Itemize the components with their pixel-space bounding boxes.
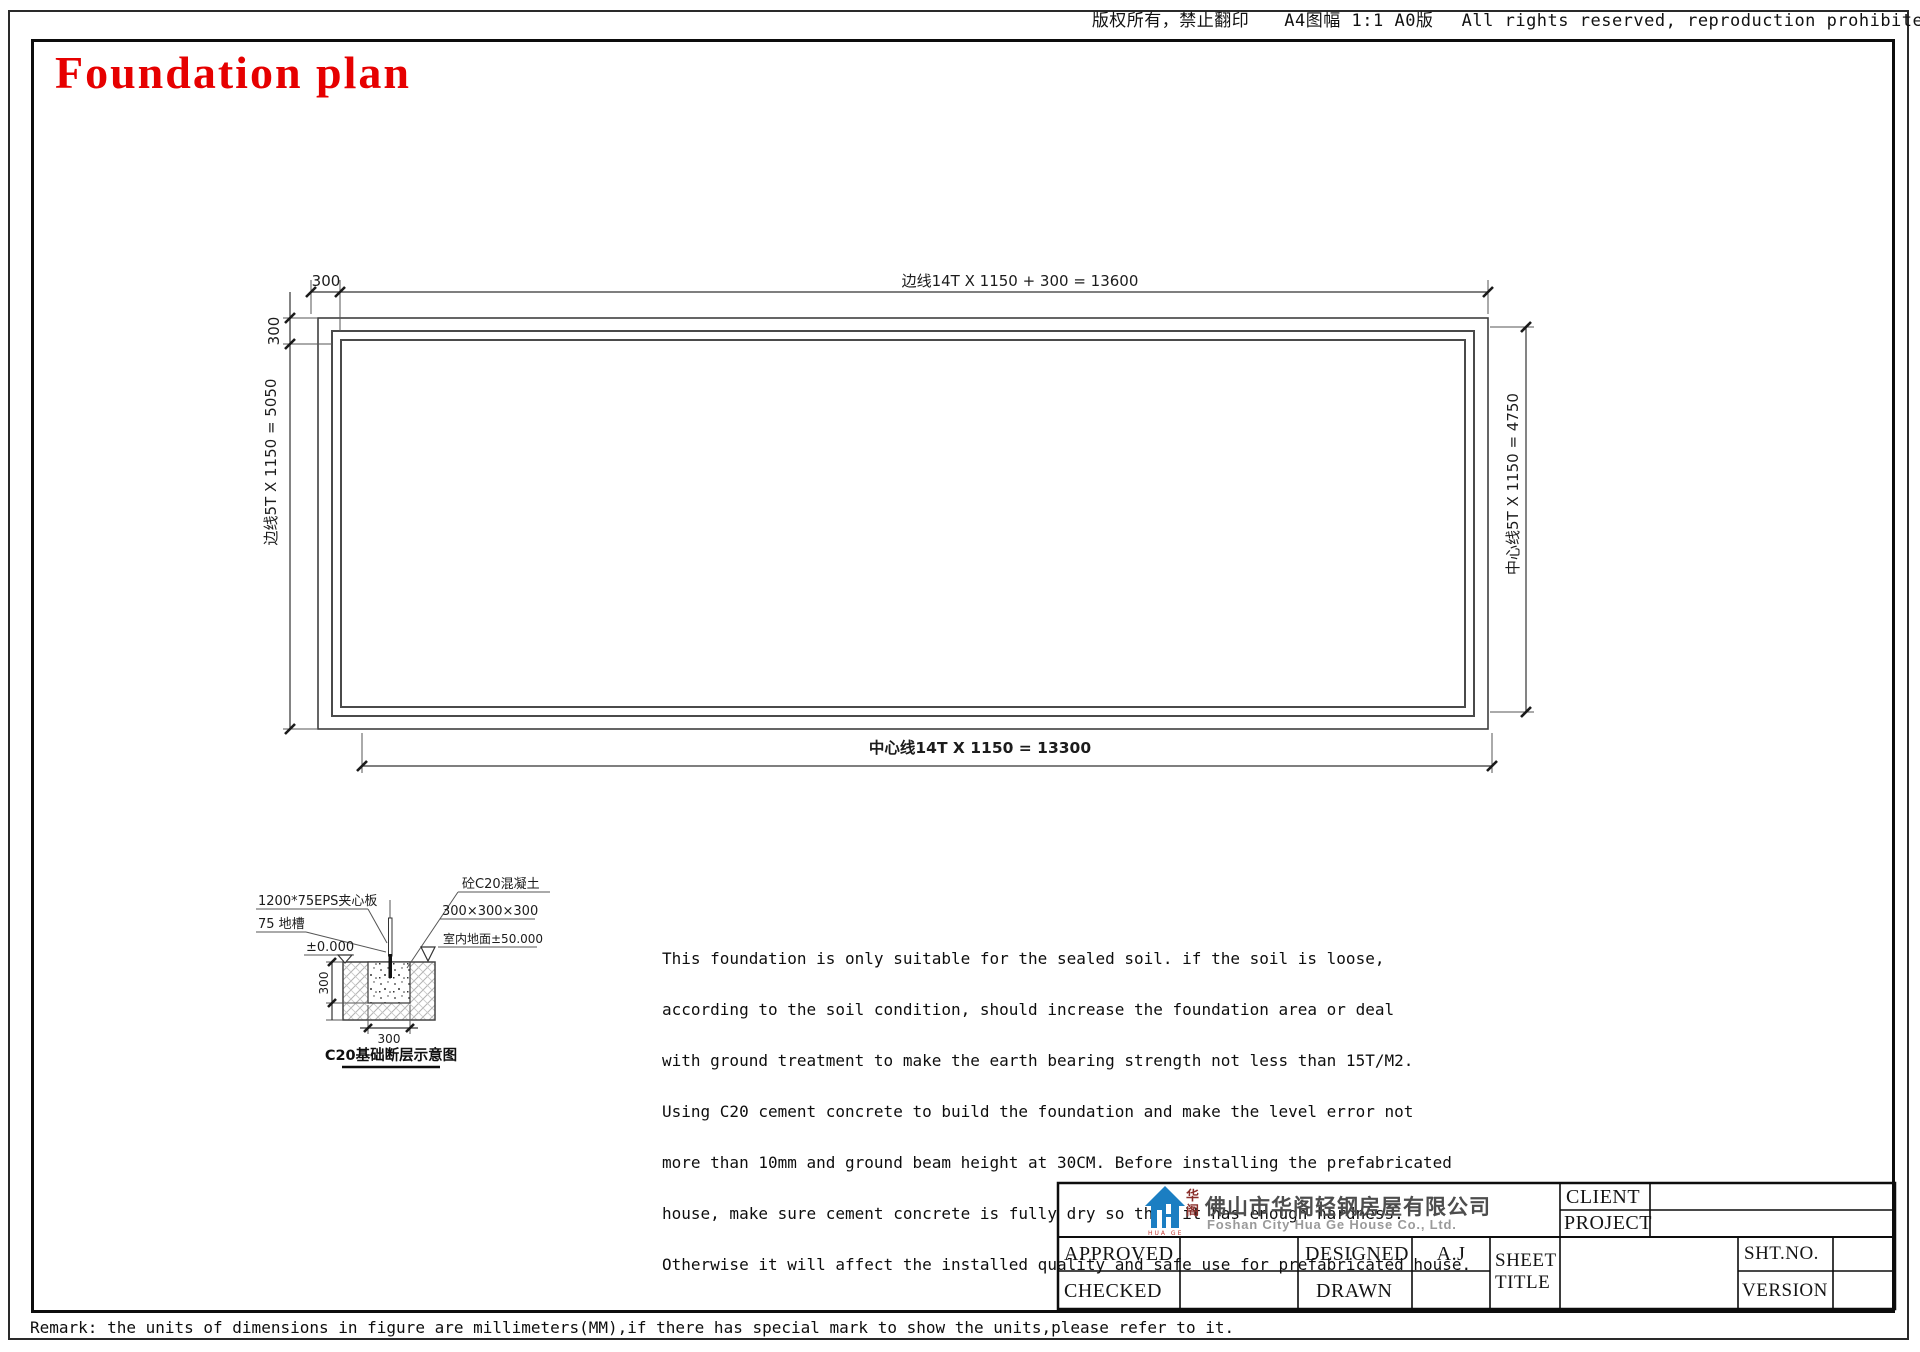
logo-char-top: 华 (1186, 1188, 1199, 1204)
sheet-title-line1: SHEET (1495, 1250, 1557, 1272)
foundation-beam-inner (341, 340, 1465, 707)
logo-subtext: HUA GE (1148, 1230, 1183, 1237)
foundation-beam-outer (332, 331, 1474, 716)
sheet-number-label: SHT.NO. (1744, 1243, 1819, 1265)
logo-char-bottom: 阁 (1186, 1203, 1199, 1219)
designed-value: A.J (1412, 1243, 1490, 1266)
detail-label-level-zero: ±0.000 (306, 940, 354, 955)
company-name-en: Foshan City Hua Ge House Co., Ltd. (1207, 1217, 1457, 1232)
logo-house-icon (1145, 1186, 1185, 1228)
company-logo: 华 阁 HUA GE (1140, 1184, 1202, 1236)
checked-label: CHECKED (1064, 1280, 1162, 1303)
dim-left-main: 边线5T X 1150 = 5050 (262, 379, 280, 546)
dim-bottom-main: 中心线14T X 1150 = 13300 (869, 738, 1091, 757)
copyright-notice: 版权所有，禁止翻印 A4图幅 1:1 A0版 All rights reserv… (1092, 6, 1920, 31)
designed-label: DESIGNED (1305, 1243, 1409, 1266)
note-line: This foundation is only suitable for the… (662, 950, 1471, 967)
detail-eps-panel-embedded (389, 954, 393, 978)
sheet-title-label: SHEET TITLE (1495, 1250, 1557, 1294)
dim-top-300: 300 (312, 272, 341, 290)
dimension-left: 300 边线5T X 1150 = 5050 (262, 292, 332, 734)
detail-caption: C20基础断层示意图 (325, 1046, 457, 1064)
remark-note: Remark: the units of dimensions in figur… (30, 1318, 1234, 1337)
drawing-sheet: 版权所有，禁止翻印 A4图幅 1:1 A0版 All rights reserv… (0, 0, 1920, 1352)
detail-label-concrete: 砼C20混凝土 (462, 876, 540, 892)
client-label: CLIENT (1566, 1186, 1640, 1209)
detail-label-eps: 1200*75EPS夹心板 (258, 894, 377, 909)
detail-label-floor-level: 室内地面±50.000 (443, 931, 543, 946)
version-label: VERSION (1742, 1280, 1828, 1302)
logo-house-window (1157, 1210, 1162, 1228)
foundation-section-detail: 1200*75EPS夹心板 75 地槽 ±0.000 砼C20混凝土 300×3… (250, 870, 590, 1085)
detail-label-level-zero-group: ±0.000 (304, 940, 354, 963)
approved-label: APPROVED (1064, 1243, 1174, 1266)
note-line: with ground treatment to make the earth … (662, 1052, 1471, 1069)
logo-house-window-bar (1166, 1214, 1171, 1217)
note-line: Using C20 cement concrete to build the f… (662, 1103, 1471, 1120)
dim-top-main: 边线14T X 1150 + 300 = 13600 (902, 272, 1139, 290)
detail-dim-width-text: 300 (378, 1032, 401, 1046)
project-label: PROJECT (1564, 1212, 1652, 1235)
floor-level-triangle-icon (421, 947, 435, 961)
note-line: more than 10mm and ground beam height at… (662, 1154, 1471, 1171)
note-line: according to the soil condition, should … (662, 1001, 1471, 1018)
dim-right-main: 中心线5T X 1150 = 4750 (1504, 393, 1522, 575)
dimension-top: 300 边线14T X 1150 + 300 = 13600 (306, 272, 1493, 331)
foundation-plan-drawing: 300 边线14T X 1150 + 300 = 13600 300 边线5T … (240, 255, 1560, 780)
detail-label-concrete-size: 300×300×300 (442, 904, 538, 919)
detail-label-floor-level-group: 室内地面±50.000 (421, 931, 543, 961)
drawn-label: DRAWN (1316, 1280, 1392, 1303)
detail-dim-depth-text: 300 (317, 972, 331, 995)
detail-eps-panel (389, 918, 393, 956)
dimension-bottom: 中心线14T X 1150 = 13300 (357, 733, 1497, 773)
sheet-title-line2: TITLE (1495, 1272, 1557, 1294)
drawing-title: Foundation plan (55, 46, 411, 99)
dimension-right: 中心线5T X 1150 = 4750 (1490, 322, 1534, 717)
detail-label-trench: 75 地槽 (258, 917, 305, 932)
dim-left-300: 300 (265, 317, 283, 346)
foundation-outer-edge (318, 318, 1488, 729)
